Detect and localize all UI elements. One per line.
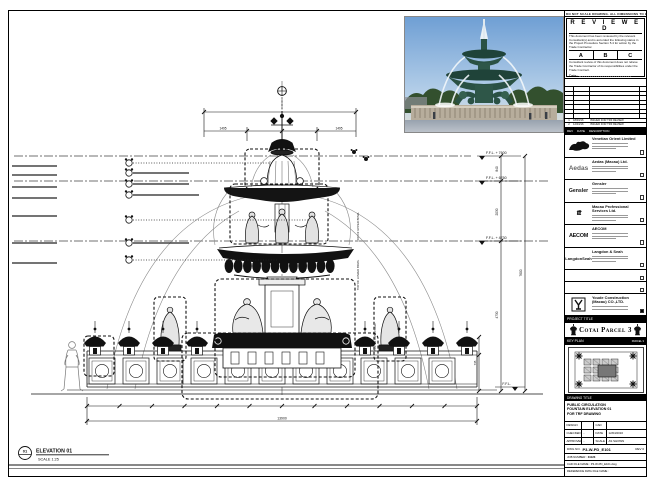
elevation-scale: SCALE 1:25 xyxy=(38,458,59,462)
human-scale-figure xyxy=(61,342,83,391)
dim-840: 840 xyxy=(495,166,499,172)
gensler-logo: Gensler xyxy=(569,188,588,194)
reviewed-stamp: R E V I E W E D This document has been r… xyxy=(565,17,646,79)
level-label-ffl: F.F.L. xyxy=(502,382,511,386)
company-box-aecom: AECOM AECOM xyxy=(565,225,646,248)
lamp-icon xyxy=(456,337,478,347)
company-name: Gensler xyxy=(592,182,646,186)
company-name: AECOM xyxy=(592,227,646,231)
blank-consultant-box xyxy=(565,282,646,294)
aedas-logo: Aedas xyxy=(569,165,589,172)
callout-symbol xyxy=(126,240,132,246)
job-number-row: JOB NUMBER : 31123 xyxy=(565,454,646,461)
company-box-venetian: Venetian Orient Limited xyxy=(565,135,646,158)
pedestal-statue-group xyxy=(212,279,352,348)
annotation-lower-bowl: TOP OF LOWER BOWL xyxy=(356,259,360,290)
lamp-icon xyxy=(84,337,106,347)
reference-file-row: REFERENCE DWG FILE NAME : xyxy=(565,468,646,474)
company-checkbox xyxy=(640,240,645,245)
dim-2030: 2030 xyxy=(495,208,499,215)
dim-lamp-height: 735 xyxy=(473,360,477,365)
cad-file-row: CAD FILE NAME : P3-W-PD_E101.dwg xyxy=(565,461,646,468)
blank-box xyxy=(565,79,646,87)
wall-panel xyxy=(361,358,387,384)
elevation-ref-number: 01 xyxy=(23,449,28,454)
dim-bottom-total: 13900 xyxy=(277,417,287,421)
contractor-name: Youde Construction (Macau) CO.,LTD. xyxy=(592,296,646,304)
lamp-ornament-icon xyxy=(634,324,641,336)
company-name: Macau Professional Services Ltd. xyxy=(592,205,646,213)
level-label-4730: F.F.L. + 4730 xyxy=(486,236,507,240)
key-plan-map xyxy=(565,345,646,395)
upper-statue-group xyxy=(245,209,318,243)
company-box-gensler: Gensler Gensler xyxy=(565,180,646,203)
dim-7600: 7600 xyxy=(519,269,523,276)
project-title-bar: PROJECT TITLE xyxy=(565,316,646,323)
checkbox xyxy=(640,276,645,281)
callout-symbol xyxy=(126,160,132,166)
elevation-title-block: 01 ELEVATION 01 SCALE 1:25 xyxy=(9,447,565,469)
company-name: Aedas (Macau) Ltd. xyxy=(592,160,646,164)
left-edge-leader-stubs xyxy=(12,166,57,263)
callout-symbol xyxy=(126,170,132,176)
top-dimension-lines xyxy=(202,108,358,141)
contractor-checkbox xyxy=(640,309,645,314)
lamp-icon xyxy=(186,337,208,347)
aecom-logo: AECOM xyxy=(569,233,588,239)
stamp-option-c: C xyxy=(618,51,642,59)
dwg-number: P3-W-PD_E101 xyxy=(583,447,611,452)
dim-top-right: 1495 xyxy=(335,127,342,131)
company-name: Venetian Orient Limited xyxy=(592,137,646,141)
wall-panel xyxy=(429,358,455,384)
callout-symbol xyxy=(126,217,132,223)
reviewed-stamp-options: A B C xyxy=(569,50,642,60)
lamp-icon xyxy=(422,337,444,347)
callout-symbol xyxy=(126,181,132,187)
revision-table-header: REVDATEDESCRIPTION xyxy=(565,128,646,134)
company-checkbox xyxy=(640,150,645,155)
level-label-6760: F.F.L. + 6760 xyxy=(486,176,507,180)
company-box-mps: ttt Macau Professional Services Ltd. xyxy=(565,203,646,226)
company-checkbox xyxy=(640,263,645,268)
company-box-langdonseah: LangdonSeah Langdon & Seah xyxy=(565,248,646,271)
lamp-icon xyxy=(118,337,140,347)
lamp-ornament-icon xyxy=(570,324,577,336)
photo-pavement xyxy=(405,120,563,132)
fountain-crown xyxy=(261,140,304,186)
callout-symbol xyxy=(126,257,132,263)
sheet-frame: 1495 1495 xyxy=(8,10,647,477)
revision-row: 212/04/16ISSUED FOR TRF REVIEW xyxy=(565,123,646,128)
wall-panel xyxy=(89,358,115,384)
stamp-option-a: A xyxy=(569,51,594,59)
bottom-dimension-chains xyxy=(85,397,479,425)
level-label-7600: F.F.L. + 7600 xyxy=(486,151,507,155)
wall-panel xyxy=(191,358,217,384)
company-name: Langdon & Seah xyxy=(592,250,646,254)
wall-panel xyxy=(157,358,183,384)
langdonseah-logo: LangdonSeah xyxy=(565,256,591,261)
drawing-title: PUBLIC CIRCULATION FOUNTAIN ELEVATION 01… xyxy=(565,401,646,422)
approval-fields: DESIGN CAD CHECKED- DATE12/04/2016 APPRO… xyxy=(565,422,646,445)
pedestal-plinth xyxy=(223,348,341,368)
project-title-row: Cotai Parcel 3 xyxy=(565,323,646,338)
company-checkbox xyxy=(640,173,645,178)
project-title: Cotai Parcel 3 xyxy=(579,327,632,334)
reviewed-stamp-title: R E V I E W E D xyxy=(569,20,642,34)
dim-top-left: 1495 xyxy=(219,127,226,131)
reference-photo-fountain xyxy=(404,16,564,133)
stamp-option-b: B xyxy=(594,51,619,59)
dim-4730: 4730 xyxy=(495,311,499,318)
company-checkbox xyxy=(640,195,645,200)
mps-logo: ttt xyxy=(577,210,581,217)
checkbox xyxy=(640,288,645,293)
drawing-sheet-page: { "sheet_note": "DO NOT SCALE DRAWING. A… xyxy=(0,0,650,488)
wall-panel xyxy=(395,358,421,384)
annotation-upper-bowl: TOP OF UPPER BOWL xyxy=(356,212,360,242)
reviewed-stamp-body2: Consultant review of this document does … xyxy=(569,61,642,72)
key-plan-bar: KEY PLANPARCEL 3 xyxy=(565,338,646,345)
contractor-box: Youde Construction (Macau) CO.,LTD. xyxy=(565,294,646,316)
blank-consultant-box xyxy=(565,270,646,282)
reviewed-stamp-body1: This document has been reviewed by the r… xyxy=(569,35,642,49)
stamp-date-line: Date : xyxy=(569,73,642,78)
dwg-number-row: DWG NO.P3-W-PD_E101 REV 0 xyxy=(565,445,646,454)
annotation-basin-wall: TOP OF BASIN WALL xyxy=(373,323,377,351)
elevation-title: ELEVATION 01 xyxy=(36,449,72,455)
company-checkbox xyxy=(640,218,645,223)
contractor-logo-icon xyxy=(565,294,592,315)
wall-panel xyxy=(123,358,149,384)
venetian-lion-logo-icon xyxy=(565,135,592,157)
callout-symbol xyxy=(126,192,132,198)
right-callout-glyphs xyxy=(351,149,370,161)
company-box-aedas: Aedas Aedas (Macau) Ltd. xyxy=(565,158,646,181)
revision-table: 118/03/16ISSUED FOR TRF REVIEW 212/04/16… xyxy=(565,87,646,135)
title-block: DO NOT SCALE DRAWING. ALL DIMENSIONS TO … xyxy=(564,11,646,476)
